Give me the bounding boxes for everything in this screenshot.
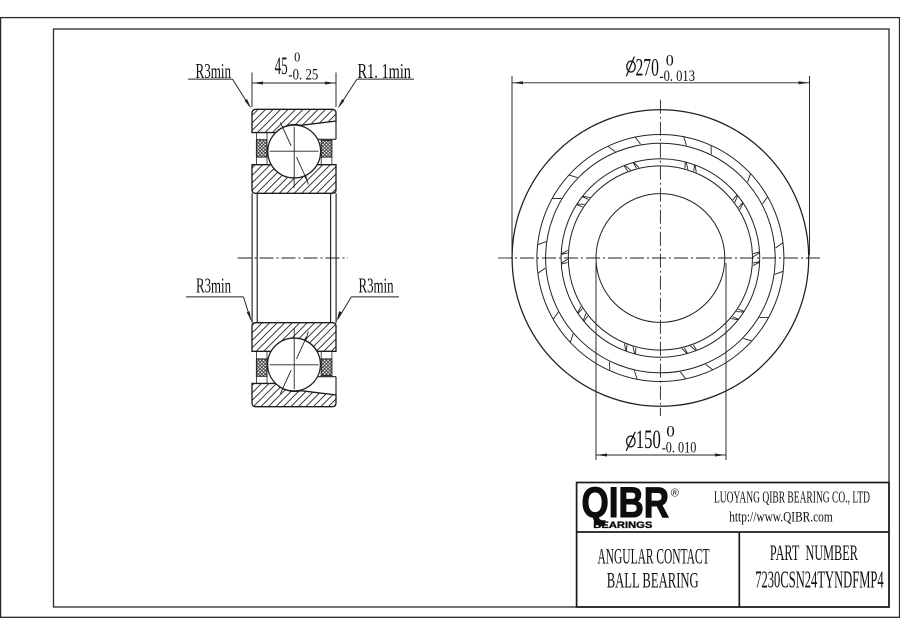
- svg-text:150: 150: [636, 425, 661, 454]
- svg-text:R3min: R3min: [359, 273, 394, 297]
- svg-text:270: 270: [636, 53, 659, 82]
- svg-text:-0. 25: -0. 25: [288, 66, 318, 83]
- svg-text:0: 0: [666, 423, 675, 440]
- svg-text:-0. 010: -0. 010: [662, 439, 697, 456]
- svg-text:45: 45: [275, 53, 288, 80]
- svg-text:PART NUMBER: PART NUMBER: [770, 540, 858, 565]
- svg-text:7230CSN24TYNDFMP4: 7230CSN24TYNDFMP4: [755, 567, 884, 593]
- svg-text:-0. 013: -0. 013: [659, 68, 695, 85]
- svg-text:http://www.QIBR.com: http://www.QIBR.com: [729, 510, 833, 526]
- svg-text:®: ®: [671, 488, 679, 500]
- svg-text:0: 0: [294, 50, 300, 65]
- svg-text:ANGULAR CONTACT: ANGULAR CONTACT: [598, 544, 710, 569]
- svg-text:LUOYANG QIBR BEARING CO., LTD: LUOYANG QIBR BEARING CO., LTD: [714, 487, 870, 506]
- svg-text:BALL BEARING: BALL BEARING: [607, 567, 699, 592]
- svg-text:0: 0: [666, 52, 674, 69]
- svg-text:BEARINGS: BEARINGS: [593, 520, 652, 530]
- svg-text:R3min: R3min: [196, 273, 231, 297]
